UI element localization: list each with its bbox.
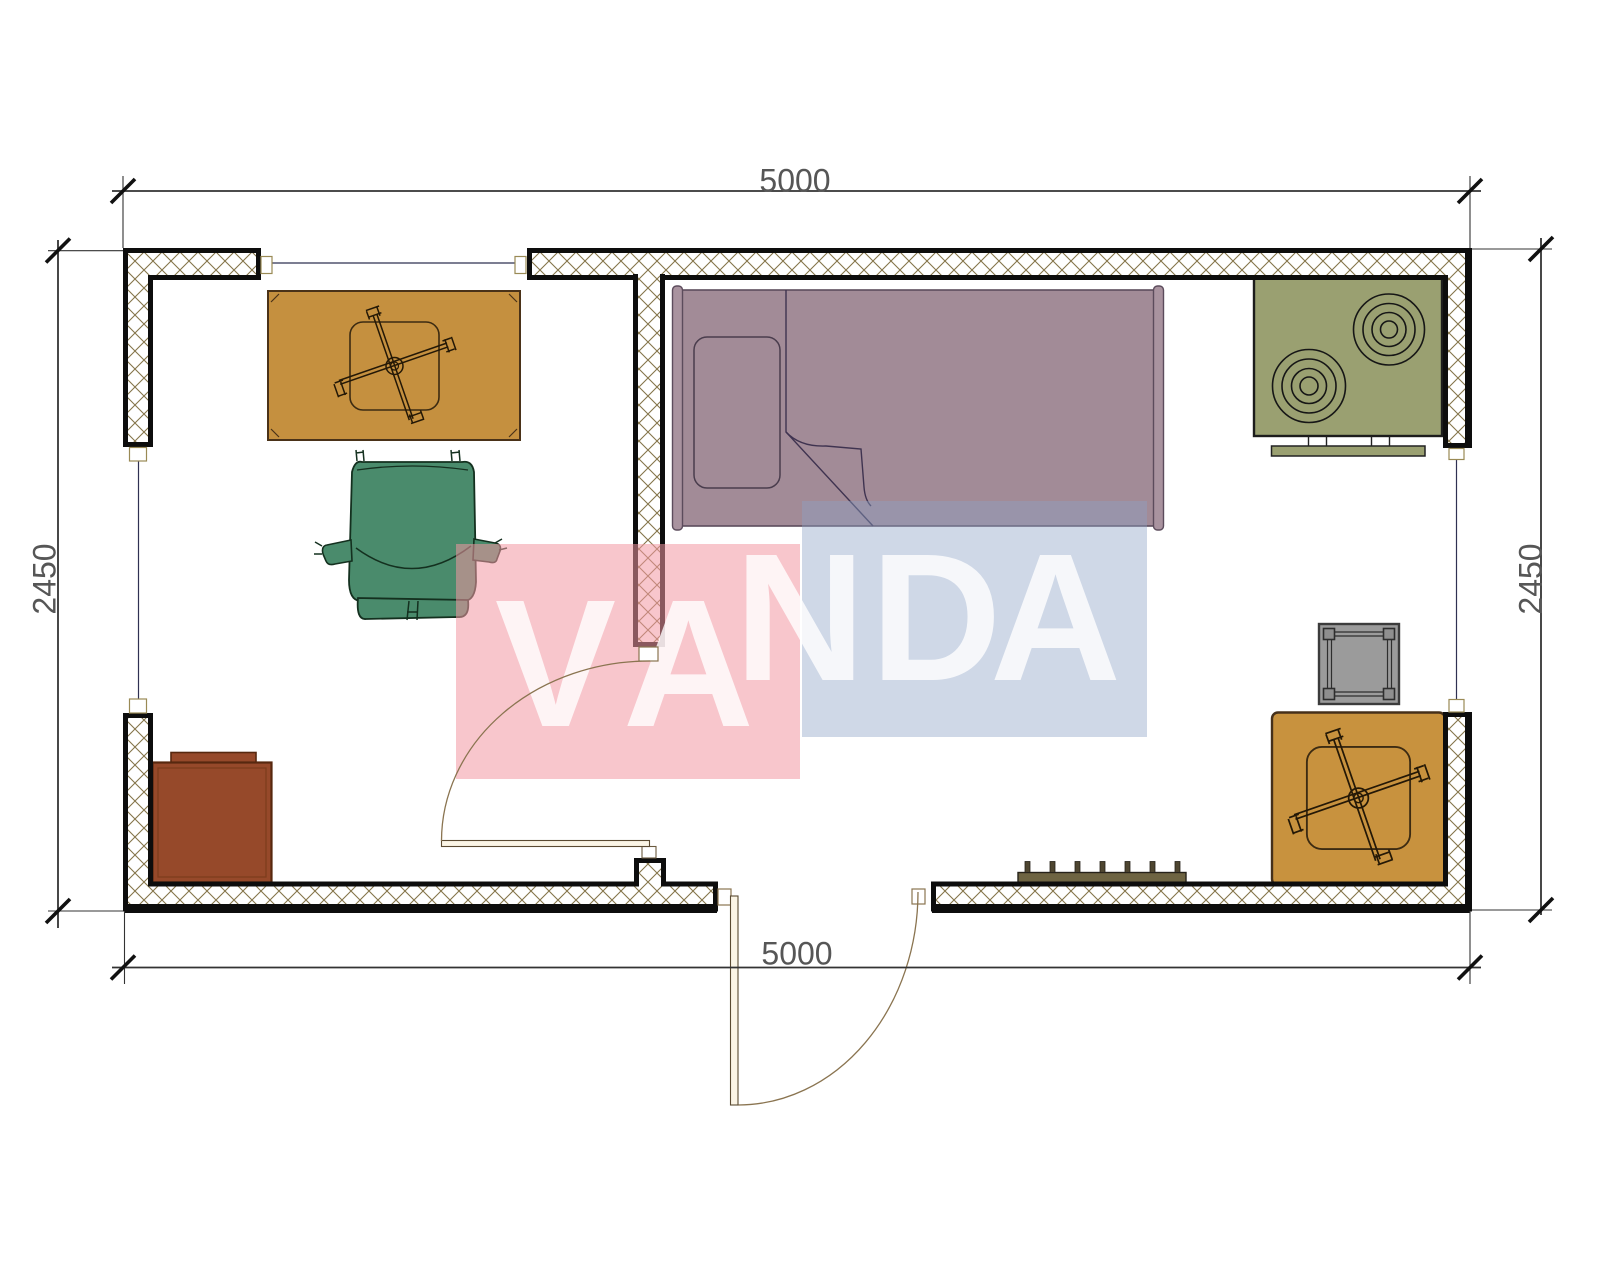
- svg-text:5000: 5000: [761, 936, 832, 972]
- svg-text:2450: 2450: [27, 543, 63, 614]
- svg-text:5000: 5000: [759, 163, 830, 199]
- svg-text:2450: 2450: [1513, 543, 1549, 614]
